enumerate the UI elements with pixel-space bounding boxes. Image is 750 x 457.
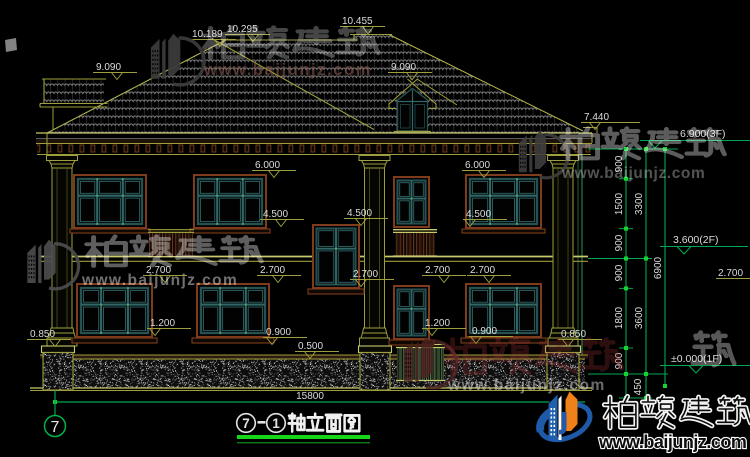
- svg-text:2.700: 2.700: [425, 265, 450, 276]
- svg-text:0.900: 0.900: [266, 327, 291, 338]
- svg-text:4.500: 4.500: [263, 209, 288, 220]
- svg-text:3300: 3300: [634, 192, 645, 215]
- svg-text:9.090: 9.090: [391, 62, 416, 73]
- svg-text:2.700: 2.700: [470, 265, 495, 276]
- svg-text:6900: 6900: [653, 256, 664, 279]
- svg-text:10.455: 10.455: [342, 16, 373, 27]
- svg-text:3.600(2F): 3.600(2F): [673, 234, 719, 246]
- svg-text:7: 7: [242, 416, 250, 431]
- svg-text:www.baijunjz.com: www.baijunjz.com: [447, 377, 606, 394]
- svg-text:1.200: 1.200: [150, 318, 175, 329]
- svg-text:www.baijunjz.com: www.baijunjz.com: [598, 432, 746, 452]
- svg-text:0.900: 0.900: [472, 326, 497, 337]
- svg-text:6.000: 6.000: [255, 160, 280, 171]
- svg-text:1800: 1800: [614, 306, 625, 329]
- svg-text:9.090: 9.090: [96, 62, 121, 73]
- svg-text:450: 450: [633, 378, 644, 395]
- svg-text:2.700: 2.700: [353, 269, 378, 280]
- svg-text:2.700: 2.700: [260, 265, 285, 276]
- svg-text:15800: 15800: [296, 391, 324, 402]
- svg-text:4.500: 4.500: [347, 208, 372, 219]
- svg-text:2.700: 2.700: [718, 268, 743, 279]
- svg-text:6.000: 6.000: [465, 160, 490, 171]
- svg-text:900: 900: [614, 264, 625, 281]
- svg-text:0.850: 0.850: [30, 329, 55, 340]
- svg-text:0.850: 0.850: [561, 329, 586, 340]
- svg-text:1500: 1500: [614, 192, 625, 215]
- svg-text:4.500: 4.500: [466, 209, 491, 220]
- svg-text:1.200: 1.200: [425, 318, 450, 329]
- svg-text:1: 1: [272, 416, 280, 431]
- svg-text:www.baijunjz.com: www.baijunjz.com: [561, 165, 705, 182]
- svg-text:3600: 3600: [634, 306, 645, 329]
- svg-text:0.500: 0.500: [298, 341, 323, 352]
- svg-text:900: 900: [614, 234, 625, 251]
- svg-text:www.baijunjz.com: www.baijunjz.com: [203, 61, 372, 79]
- svg-text:7.440: 7.440: [584, 112, 609, 123]
- svg-text:www.baijunjz.com: www.baijunjz.com: [81, 272, 238, 289]
- svg-text:7: 7: [51, 419, 60, 436]
